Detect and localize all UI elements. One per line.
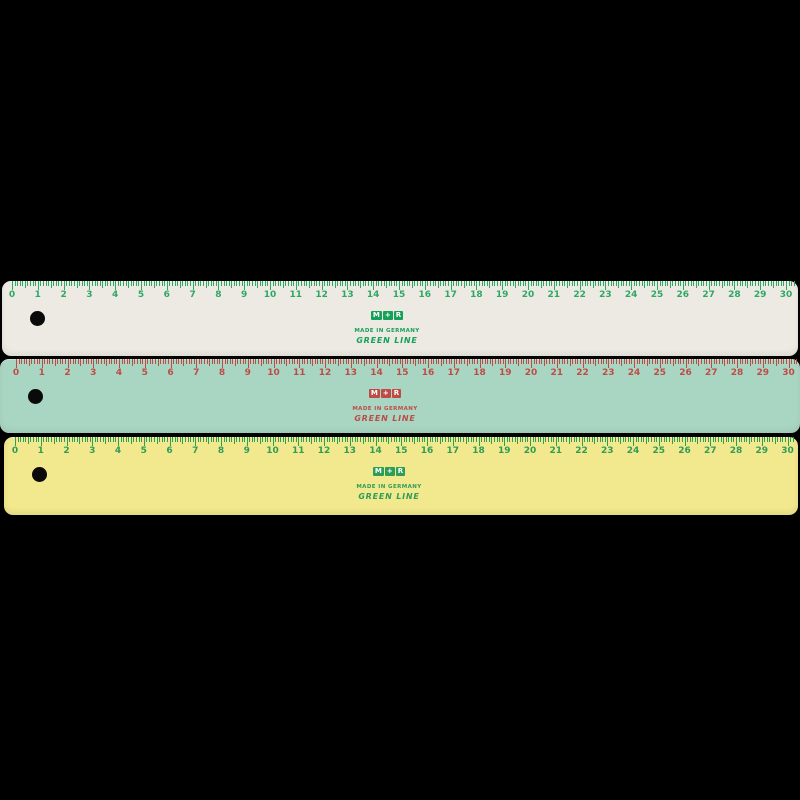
tick-mark: [340, 281, 341, 286]
tick-mark: [128, 281, 129, 288]
tick-mark: [165, 359, 166, 364]
tick-mark: [536, 359, 537, 364]
scale-number: 20: [522, 291, 535, 300]
tick-mark: [554, 281, 555, 290]
tick-mark: [138, 281, 139, 286]
tick-mark: [740, 359, 741, 364]
tick-mark: [72, 437, 73, 442]
tick-mark: [583, 359, 584, 368]
tick-mark: [185, 281, 186, 286]
scale-number: 28: [728, 291, 741, 300]
tick-mark: [588, 359, 589, 364]
tick-mark: [662, 281, 663, 286]
tick-mark: [47, 359, 48, 364]
tick-mark: [128, 437, 129, 442]
tick-mark: [755, 281, 756, 286]
tick-mark: [562, 359, 563, 364]
tick-mark: [417, 281, 418, 286]
tick-mark: [121, 437, 122, 442]
tick-mark: [350, 437, 351, 446]
tick-mark: [382, 359, 383, 364]
tick-mark: [791, 359, 792, 364]
tick-mark: [788, 437, 789, 446]
tick-mark: [570, 359, 571, 366]
tick-mark: [677, 437, 678, 442]
tick-mark: [701, 281, 702, 286]
tick-mark: [790, 437, 791, 442]
tick-mark: [608, 359, 609, 368]
tick-mark: [762, 437, 763, 446]
tick-mark: [322, 359, 323, 364]
tick-mark: [732, 359, 733, 364]
tick-mark: [680, 359, 681, 364]
tick-mark: [102, 281, 103, 288]
tick-mark: [262, 281, 263, 286]
tick-mark: [33, 437, 34, 442]
tick-mark: [41, 437, 42, 446]
tick-mark: [406, 437, 407, 442]
tick-mark: [752, 359, 753, 364]
tick-mark: [58, 281, 59, 286]
tick-mark: [412, 281, 413, 288]
tick-mark: [697, 437, 698, 444]
tick-mark: [64, 281, 65, 290]
tick-mark: [675, 359, 676, 364]
tick-mark: [414, 281, 415, 286]
tick-mark: [549, 281, 550, 286]
tick-mark: [335, 281, 336, 288]
tick-mark: [200, 281, 201, 286]
scale-number: 4: [115, 447, 121, 456]
tick-mark: [440, 437, 441, 444]
tick-mark: [397, 359, 398, 364]
tick-mark: [283, 437, 284, 442]
tick-mark: [173, 359, 174, 364]
tick-mark: [317, 359, 318, 364]
tick-mark: [409, 281, 410, 286]
tick-mark: [655, 359, 656, 364]
scale-number: 30: [782, 369, 795, 378]
scale-number: 11: [292, 447, 305, 456]
tick-mark: [523, 359, 524, 364]
tick-mark: [450, 437, 451, 442]
tick-mark: [639, 359, 640, 364]
scale-number: 10: [267, 369, 280, 378]
tick-mark: [49, 359, 50, 364]
scale-number: 24: [628, 369, 641, 378]
tick-mark: [187, 281, 188, 286]
tick-mark: [376, 281, 377, 286]
scale-number: 30: [781, 447, 794, 456]
tick-mark: [51, 281, 52, 288]
brand-mark: M + R: [369, 389, 401, 398]
tick-mark: [420, 359, 421, 364]
tick-mark: [636, 281, 637, 286]
tick-mark: [303, 437, 304, 442]
tick-mark: [517, 437, 518, 444]
tick-mark: [319, 437, 320, 442]
tick-mark: [15, 281, 16, 286]
tick-mark: [495, 359, 496, 364]
tick-mark: [567, 359, 568, 364]
tick-mark: [487, 281, 488, 286]
tick-mark: [311, 437, 312, 444]
tick-mark: [523, 281, 524, 286]
scale-number: 7: [189, 291, 195, 300]
tick-mark: [520, 281, 521, 286]
tick-mark: [80, 359, 81, 366]
tick-mark: [378, 437, 379, 442]
tick-mark: [633, 437, 634, 446]
tick-mark: [649, 359, 650, 364]
tick-mark: [764, 437, 765, 442]
tick-mark: [437, 437, 438, 442]
tick-mark: [513, 359, 514, 364]
tick-mark: [343, 359, 344, 364]
tick-mark: [721, 437, 722, 442]
tick-mark: [703, 437, 704, 442]
tick-mark: [273, 281, 274, 286]
tick-mark: [580, 359, 581, 364]
tick-mark: [515, 437, 516, 442]
tick-mark: [314, 281, 315, 286]
tick-mark: [302, 359, 303, 364]
tick-mark: [624, 359, 625, 364]
tick-mark: [708, 437, 709, 442]
tick-mark: [672, 437, 673, 444]
tick-mark: [88, 359, 89, 364]
tick-mark: [500, 281, 501, 286]
tick-mark: [118, 281, 119, 286]
tick-mark: [353, 281, 354, 286]
tick-mark: [122, 359, 123, 364]
tick-mark: [391, 437, 392, 442]
scale-number: 12: [318, 447, 331, 456]
tick-mark: [139, 437, 140, 442]
tick-mark: [670, 359, 671, 364]
tick-mark: [621, 281, 622, 286]
tick-mark: [602, 437, 603, 442]
tick-mark: [618, 281, 619, 288]
tick-mark: [304, 359, 305, 364]
tick-mark: [196, 359, 197, 368]
tick-mark: [118, 437, 119, 446]
tick-mark: [484, 437, 485, 442]
scale-number: 6: [167, 369, 173, 378]
tick-mark: [199, 359, 200, 364]
tick-mark: [706, 281, 707, 286]
tick-mark: [794, 281, 795, 286]
tick-mark: [634, 281, 635, 286]
tick-mark: [26, 359, 27, 364]
tick-mark: [425, 281, 426, 290]
tick-mark: [639, 281, 640, 286]
tick-mark: [533, 437, 534, 442]
tick-mark: [513, 281, 514, 286]
tick-mark: [585, 359, 586, 364]
scale-number: 14: [370, 369, 383, 378]
tick-mark: [589, 437, 590, 442]
tick-mark: [36, 437, 37, 442]
tick-mark: [263, 359, 264, 364]
tick-mark: [722, 359, 723, 364]
tick-mark: [644, 281, 645, 288]
tick-mark: [616, 359, 617, 364]
tick-mark: [572, 281, 573, 286]
tick-mark: [61, 281, 62, 286]
scale-number: 18: [473, 369, 486, 378]
tick-mark: [391, 281, 392, 286]
tick-mark: [229, 281, 230, 286]
tick-mark: [541, 359, 542, 364]
tick-mark: [144, 281, 145, 286]
tick-mark: [265, 281, 266, 286]
tick-mark: [368, 437, 369, 442]
tick-mark: [723, 437, 724, 444]
tick-mark: [17, 281, 18, 286]
tick-mark: [685, 281, 686, 286]
tick-mark: [157, 437, 158, 444]
tick-mark: [16, 359, 17, 368]
tick-mark: [329, 281, 330, 286]
tick-mark: [163, 359, 164, 364]
scale-number: 7: [192, 447, 198, 456]
scale-number: 15: [395, 447, 408, 456]
tick-mark: [155, 359, 156, 364]
tick-mark: [461, 359, 462, 364]
tick-mark: [131, 437, 132, 444]
tick-mark: [242, 281, 243, 286]
tick-mark: [789, 281, 790, 286]
tick-mark: [724, 281, 725, 286]
scale-number: 8: [219, 369, 225, 378]
tick-mark: [87, 281, 88, 286]
tick-mark: [239, 281, 240, 286]
tick-mark: [209, 359, 210, 366]
tick-mark: [705, 437, 706, 442]
tick-mark: [89, 281, 90, 290]
tick-mark: [276, 359, 277, 364]
tick-mark: [713, 437, 714, 442]
tick-mark: [601, 359, 602, 364]
scale-number: 13: [344, 369, 357, 378]
punch-hole: [32, 467, 47, 482]
tick-mark: [619, 359, 620, 364]
tick-mark: [360, 281, 361, 288]
tick-mark: [327, 281, 328, 286]
tick-mark: [164, 437, 165, 442]
tick-mark: [693, 281, 694, 286]
scale-number: 30: [780, 291, 793, 300]
tick-mark: [404, 281, 405, 286]
tick-mark: [377, 359, 378, 368]
tick-mark: [508, 359, 509, 364]
tick-mark: [763, 359, 764, 368]
tick-mark: [520, 437, 521, 442]
tick-mark: [768, 359, 769, 364]
tick-mark: [44, 359, 45, 364]
tick-mark: [765, 281, 766, 286]
tick-mark: [351, 359, 352, 368]
tick-mark: [538, 437, 539, 442]
tick-mark: [352, 437, 353, 442]
tick-mark: [543, 437, 544, 444]
tick-mark: [420, 281, 421, 286]
tick-mark: [600, 437, 601, 442]
tick-mark: [499, 437, 500, 442]
tick-mark: [683, 281, 684, 290]
scale-number: 9: [244, 447, 250, 456]
tick-mark: [704, 359, 705, 364]
tick-mark: [696, 281, 697, 288]
scale-number: 8: [218, 447, 224, 456]
tick-mark: [146, 437, 147, 442]
tick-mark: [253, 359, 254, 364]
tick-mark: [111, 359, 112, 364]
tick-mark: [623, 281, 624, 286]
tick-mark: [593, 359, 594, 364]
tick-mark: [226, 437, 227, 442]
tick-mark: [217, 359, 218, 364]
tick-mark: [200, 437, 201, 442]
tick-mark: [497, 437, 498, 442]
tick-mark: [459, 359, 460, 364]
tick-mark: [311, 281, 312, 286]
tick-mark: [309, 437, 310, 442]
tick-mark: [208, 281, 209, 286]
tick-mark: [518, 281, 519, 286]
brand-logo: M + R MADE IN GERMANY GREEN LINE: [327, 467, 451, 501]
tick-mark: [448, 281, 449, 286]
tick-mark: [236, 437, 237, 442]
tick-mark: [159, 437, 160, 442]
tick-mark: [605, 437, 606, 442]
tick-mark: [304, 281, 305, 286]
tick-mark: [129, 359, 130, 364]
tick-mark: [56, 437, 57, 442]
tick-mark: [364, 359, 365, 366]
tick-mark: [546, 281, 547, 286]
tick-mark: [206, 437, 207, 442]
tick-mark: [742, 281, 743, 286]
tick-mark: [38, 281, 39, 290]
tick-mark: [438, 359, 439, 364]
tick-mark: [182, 281, 183, 286]
tick-mark: [760, 359, 761, 364]
tick-mark: [625, 437, 626, 442]
brand-logo: M + R MADE IN GERMANY GREEN LINE: [323, 389, 447, 423]
tick-mark: [469, 359, 470, 364]
tick-mark: [442, 437, 443, 442]
tick-mark: [110, 437, 111, 442]
tick-mark: [332, 281, 333, 286]
tick-mark: [265, 437, 266, 442]
tick-mark: [559, 359, 560, 364]
tick-mark: [644, 359, 645, 364]
scale-number: 24: [627, 447, 640, 456]
tick-mark: [347, 437, 348, 442]
tick-mark: [765, 359, 766, 364]
tick-mark: [489, 437, 490, 442]
tick-mark: [175, 437, 176, 442]
scale-number: 23: [602, 369, 615, 378]
tick-mark: [66, 281, 67, 286]
tick-mark: [566, 437, 567, 442]
scale-number: 23: [599, 291, 612, 300]
tick-mark: [546, 359, 547, 364]
tick-mark: [90, 437, 91, 442]
tick-mark: [244, 281, 245, 290]
tick-mark: [441, 359, 442, 366]
tick-mark: [365, 281, 366, 286]
tick-mark: [322, 281, 323, 290]
tick-mark: [758, 359, 759, 364]
scale-number: 1: [39, 369, 45, 378]
scale-number: 25: [651, 291, 664, 300]
tick-mark: [500, 359, 501, 364]
tick-mark: [492, 281, 493, 286]
tick-mark: [487, 359, 488, 364]
tick-mark: [477, 359, 478, 364]
tick-mark: [158, 359, 159, 366]
tick-mark: [293, 437, 294, 442]
tick-mark: [100, 281, 101, 286]
tick-mark: [674, 437, 675, 442]
tick-mark: [503, 359, 504, 364]
scale-number: 26: [678, 447, 691, 456]
tick-mark: [525, 437, 526, 442]
tick-mark: [278, 437, 279, 442]
tick-mark: [42, 359, 43, 368]
tick-mark: [249, 437, 250, 442]
tick-mark: [221, 281, 222, 286]
tick-mark: [193, 281, 194, 290]
tick-mark: [347, 281, 348, 290]
tick-mark: [590, 281, 591, 286]
tick-mark: [585, 281, 586, 286]
tick-mark: [745, 281, 746, 286]
tick-mark: [460, 437, 461, 442]
tick-mark: [466, 437, 467, 444]
tick-mark: [312, 359, 313, 366]
tick-mark: [126, 281, 127, 286]
scale-number: 0: [13, 369, 19, 378]
tick-mark: [693, 359, 694, 364]
tick-mark: [698, 281, 699, 286]
tick-mark: [107, 281, 108, 286]
tick-mark: [183, 359, 184, 366]
tick-mark: [402, 281, 403, 286]
tick-mark: [267, 437, 268, 442]
tick-mark: [342, 281, 343, 286]
tick-mark: [68, 359, 69, 368]
tick-mark: [144, 437, 145, 446]
tick-mark: [255, 359, 256, 364]
scale-number: 2: [63, 447, 69, 456]
tick-mark: [490, 359, 491, 364]
tick-mark: [334, 437, 335, 442]
scale-number: 18: [472, 447, 485, 456]
tick-mark: [330, 359, 331, 364]
tick-mark: [559, 281, 560, 286]
tick-mark: [190, 281, 191, 286]
tick-mark: [257, 281, 258, 288]
tick-mark: [574, 437, 575, 442]
tick-mark: [558, 437, 559, 442]
tick-mark: [584, 437, 585, 442]
tick-mark: [598, 281, 599, 286]
tick-mark: [106, 359, 107, 366]
